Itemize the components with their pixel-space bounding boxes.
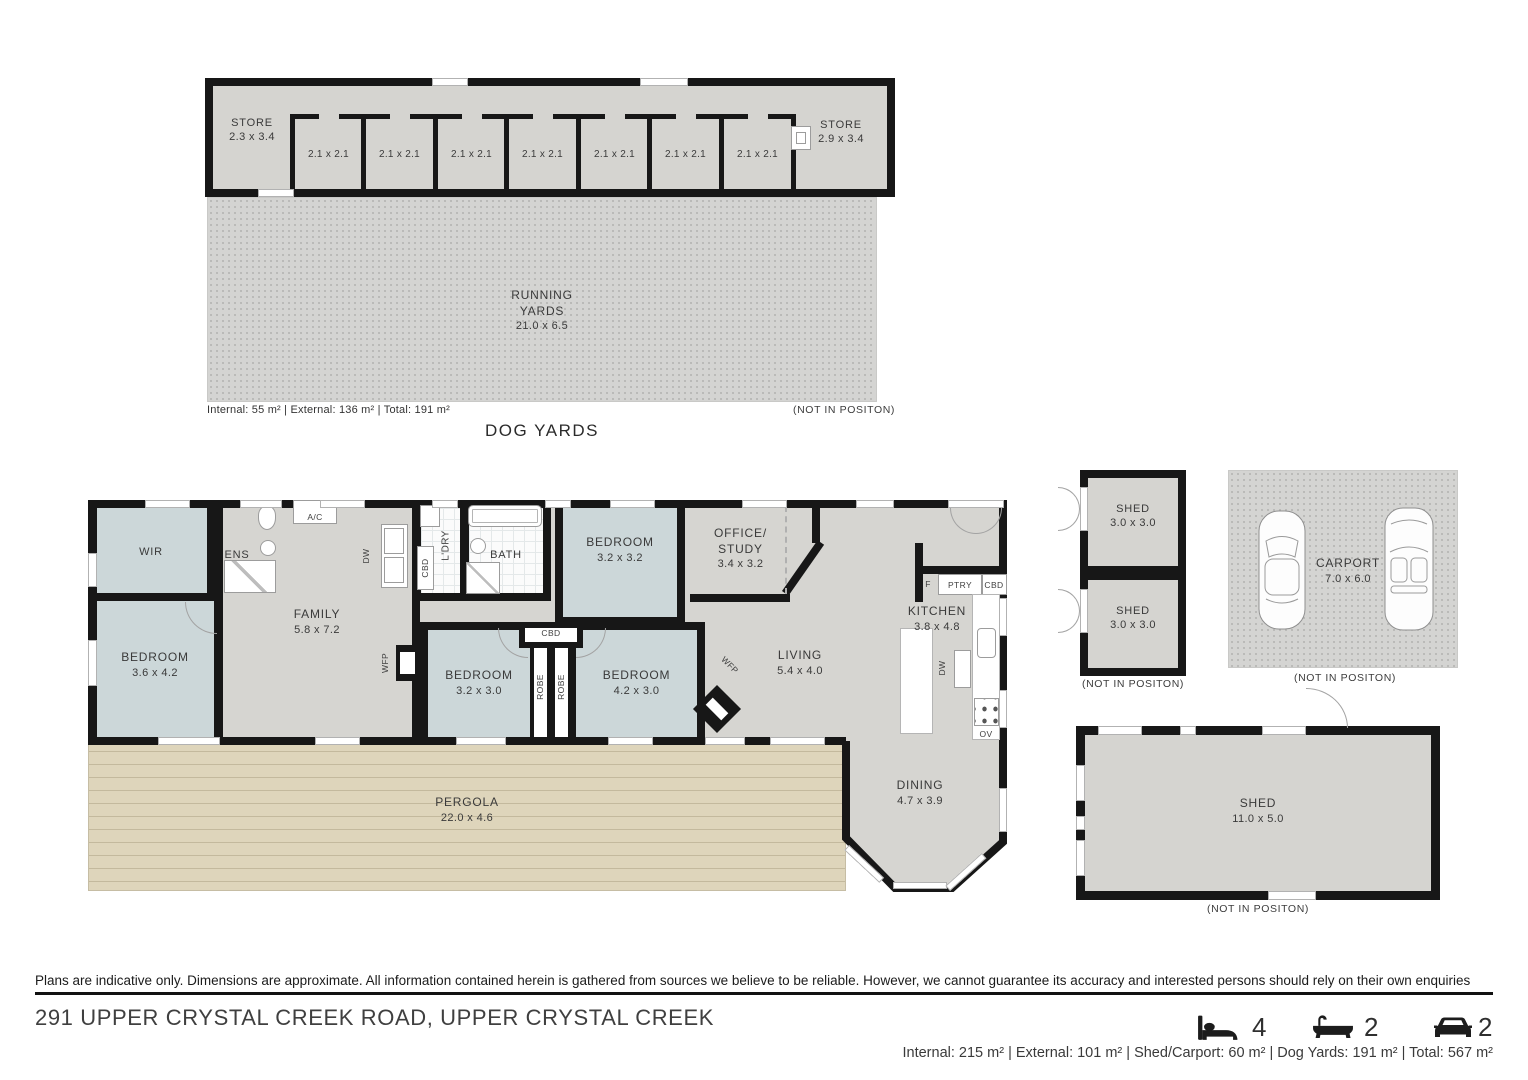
kennel-door-gap xyxy=(748,114,768,119)
door-arc xyxy=(1058,611,1080,633)
door-arc xyxy=(1058,509,1080,531)
window-segment xyxy=(240,500,282,508)
running-yards-label: RUNNING YARDS 21.0 x 6.5 xyxy=(207,288,877,333)
door-gap xyxy=(258,189,294,197)
kennel-dims: 2.1 x 2.1 xyxy=(652,149,719,160)
not-in-position-note: (NOT IN POSITON) xyxy=(1270,672,1420,684)
kennel-door-gap xyxy=(462,114,482,119)
oven-label: OV xyxy=(972,729,1000,739)
window-segment xyxy=(432,78,468,86)
entry-door-gap xyxy=(948,500,1004,508)
bay-window-segment xyxy=(893,882,947,889)
not-in-position-note: (NOT IN POSITON) xyxy=(700,404,895,416)
sliding-door-segment xyxy=(315,737,360,745)
door-arc xyxy=(1306,688,1348,728)
kennel-4: 2.1 x 2.1 xyxy=(504,114,581,189)
kennel-building: STORE 2.3 x 3.4 2.1 x 2.1 2.1 x 2.1 2.1 … xyxy=(205,78,895,197)
shed-door-gap xyxy=(1262,726,1306,735)
kennel-dims: 2.1 x 2.1 xyxy=(366,149,433,160)
not-in-position-note: (NOT IN POSITON) xyxy=(1076,903,1440,915)
dryer-icon xyxy=(384,557,404,583)
window-segment xyxy=(999,788,1007,832)
sliding-door-segment xyxy=(456,737,506,745)
toilet-icon xyxy=(258,506,276,530)
window-segment xyxy=(999,598,1007,636)
kitchen-label: KITCHEN 3.8 x 4.8 xyxy=(893,604,981,634)
kennel-dims: 2.1 x 2.1 xyxy=(724,149,791,160)
door-arc xyxy=(1058,487,1080,509)
wall-segment xyxy=(812,505,820,543)
window-segment xyxy=(640,78,688,86)
pergola-label: PERGOLA 22.0 x 4.6 xyxy=(88,795,846,825)
window-segment xyxy=(320,500,365,508)
bath-icon xyxy=(1312,1014,1354,1042)
dog-yards-areas-line: Internal: 55 m² | External: 136 m² | Tot… xyxy=(207,404,450,416)
family-appliance-nook xyxy=(381,524,408,588)
kennel-dims: 2.1 x 2.1 xyxy=(295,149,362,160)
bath-count: 2 xyxy=(1364,1012,1378,1043)
dining-label: DINING 4.7 x 3.9 xyxy=(860,778,980,808)
kennel-6: 2.1 x 2.1 xyxy=(647,114,724,189)
kennel-dims: 2.1 x 2.1 xyxy=(509,149,576,160)
island-bench xyxy=(900,628,933,734)
wir-label: WIR xyxy=(96,545,206,559)
shed-small-1-label: SHED 3.0 x 3.0 xyxy=(1080,502,1186,531)
dishwasher-box xyxy=(954,650,971,688)
kennel-door-gap xyxy=(390,114,410,119)
cbd-label: CBD xyxy=(519,628,583,638)
kennel-7: 2.1 x 2.1 xyxy=(719,114,796,189)
floor-plan-page: RUNNING YARDS 21.0 x 6.5 STORE 2.3 x 3.4… xyxy=(0,0,1528,1080)
car-count: 2 xyxy=(1478,1012,1492,1043)
kennel-door-gap xyxy=(676,114,696,119)
kennel-1: 2.1 x 2.1 xyxy=(290,114,367,189)
window-segment xyxy=(1076,840,1085,876)
wfp-family-box xyxy=(396,645,422,681)
bedroom2-label: BEDROOM 3.2 x 3.2 xyxy=(555,535,685,565)
bed-icon xyxy=(1195,1014,1241,1042)
kennel-dims: 2.1 x 2.1 xyxy=(581,149,648,160)
kennel-door-gap xyxy=(605,114,625,119)
dog-yards-title: DOG YARDS xyxy=(207,421,877,441)
kennel-door-gap xyxy=(319,114,339,119)
wall-segment xyxy=(88,500,97,745)
kennel-2: 2.1 x 2.1 xyxy=(361,114,438,189)
shed-large-label: SHED 11.0 x 5.0 xyxy=(1076,796,1440,826)
dw-kitchen-label: DW xyxy=(937,653,947,683)
sliding-door-segment xyxy=(705,737,745,745)
shed-small-2-label: SHED 3.0 x 3.0 xyxy=(1080,604,1186,633)
wall-segment xyxy=(690,594,790,602)
divider-rule xyxy=(35,992,1493,995)
cbd-kitchen-label: CBD xyxy=(981,580,1007,590)
kennel-dims: 2.1 x 2.1 xyxy=(438,149,505,160)
window-segment xyxy=(610,500,655,508)
cbd-laundry-label: CBD xyxy=(420,550,430,586)
kennel-door-gap xyxy=(533,114,553,119)
disclaimer-text: Plans are indicative only. Dimensions ar… xyxy=(35,973,1493,988)
shower-icon xyxy=(466,562,500,594)
carport-label: CARPORT 7.0 x 6.0 xyxy=(1303,556,1393,586)
dining-bay xyxy=(834,730,1007,895)
pantry-label: PTRY xyxy=(938,580,982,590)
living-label: LIVING 5.4 x 4.0 xyxy=(745,648,855,678)
window-segment xyxy=(1098,726,1142,735)
ac-label: A/C xyxy=(294,512,336,522)
wfp-living-inner xyxy=(706,698,729,721)
fridge-label: F xyxy=(920,579,936,589)
washer-icon xyxy=(384,528,404,554)
stove-icon xyxy=(974,698,999,726)
window-segment xyxy=(999,690,1007,728)
bathtub-icon xyxy=(468,505,542,527)
bed-count: 4 xyxy=(1252,1012,1266,1043)
window-segment xyxy=(1180,726,1196,735)
bedroom4-label: BEDROOM 4.2 x 3.0 xyxy=(568,668,705,698)
wfp-family-inner xyxy=(400,652,415,674)
sliding-door-segment xyxy=(770,737,825,745)
ldry-label: L'DRY xyxy=(441,512,452,580)
window-segment xyxy=(545,500,571,508)
sliding-door-segment xyxy=(158,737,220,745)
bath-label: BATH xyxy=(461,548,551,562)
robe-label-2: ROBE xyxy=(556,662,566,712)
car-icon xyxy=(1432,1015,1474,1041)
sliding-door-segment xyxy=(608,737,653,745)
property-address: 291 UPPER CRYSTAL CREEK ROAD, UPPER CRYS… xyxy=(35,1005,714,1031)
store-left-label: STORE 2.3 x 3.4 xyxy=(213,116,291,145)
window-segment xyxy=(432,500,458,508)
office-label: OFFICE/ STUDY 3.4 x 3.2 xyxy=(683,526,798,571)
areas-summary: Internal: 215 m² | External: 101 m² | Sh… xyxy=(800,1045,1493,1061)
bedroom3-label: BEDROOM 3.2 x 3.0 xyxy=(420,668,538,698)
kennel-3: 2.1 x 2.1 xyxy=(433,114,510,189)
store-right-label: STORE 2.9 x 3.4 xyxy=(795,118,887,147)
wall-segment xyxy=(915,566,1007,574)
window-segment xyxy=(1268,891,1316,900)
bedroom1-label: BEDROOM 3.6 x 4.2 xyxy=(88,650,222,680)
ens-label: ENS xyxy=(207,548,267,562)
dw-family-label: DW xyxy=(361,541,371,571)
wfp-family-label: WFP xyxy=(380,648,390,678)
laundry-tub-icon xyxy=(420,505,440,527)
window-segment xyxy=(742,500,787,508)
not-in-position-note: (NOT IN POSITON) xyxy=(1060,678,1206,690)
window-segment xyxy=(145,500,190,508)
window-segment xyxy=(856,500,894,508)
door-arc xyxy=(1058,589,1080,611)
kennel-5: 2.1 x 2.1 xyxy=(576,114,653,189)
ens-shower-icon xyxy=(224,560,276,593)
family-label: FAMILY 5.8 x 7.2 xyxy=(257,607,377,637)
